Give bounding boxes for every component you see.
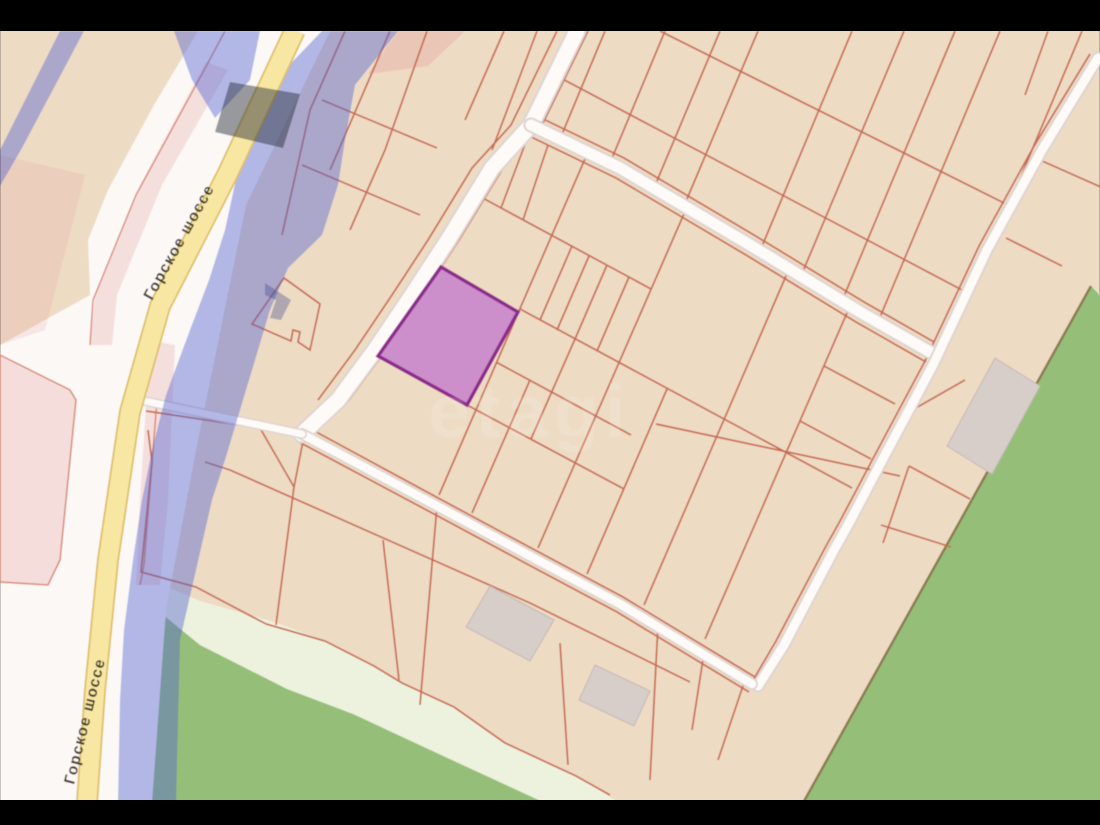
svg-text:etagi: etagi	[429, 370, 632, 453]
